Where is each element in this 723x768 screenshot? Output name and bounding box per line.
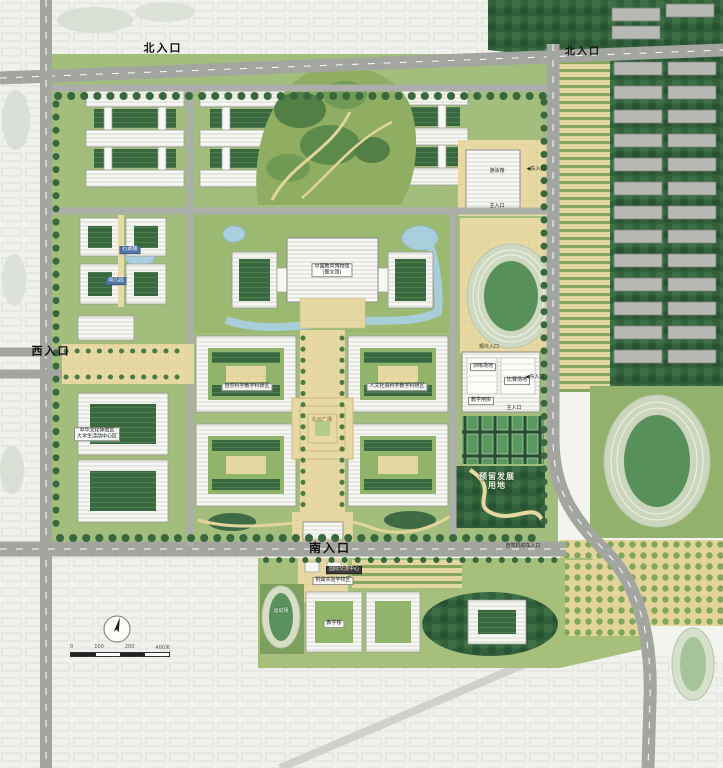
- school-building-label: 教学楼: [323, 620, 344, 628]
- gym-classrooms-label: 教学用房: [468, 397, 494, 405]
- school-sports-field-label: 运动场: [273, 609, 288, 615]
- vehicle-entrance-label: 自驾机动车入口: [505, 544, 540, 550]
- central-axis: [292, 330, 353, 548]
- culture-zone-label: 中华文化体验区大学生活动中心区: [74, 427, 120, 441]
- intl-center-label: 国际交流中心: [326, 566, 362, 574]
- scale-tick: 0: [70, 644, 73, 651]
- scale-tick: 400米: [155, 644, 170, 651]
- gym-east-entrance-label: ◀东入口: [526, 375, 545, 381]
- east-stadium: [590, 386, 723, 538]
- north-entrance-east-label: 北入口: [565, 46, 601, 58]
- library-label: 中国教育博物馆(图文馆): [311, 263, 352, 277]
- west-entrance-label: 西入口: [32, 346, 71, 359]
- industrial-zone-east: [556, 46, 723, 392]
- gym-main-entrance-label: 主入口: [506, 406, 521, 412]
- pool-east-entrance-label: ◀东入口: [527, 167, 546, 173]
- reserved-land-label: 预留发展用地: [479, 472, 515, 490]
- kindergarten-label: 幼儿园: [105, 277, 126, 285]
- south-campus: [258, 558, 648, 668]
- ceremony-plaza-label: 礼仪广场: [312, 418, 332, 424]
- sciences-zone-label: 自然科学教学科研区: [221, 383, 272, 391]
- admin-building-label: 行政楼: [119, 246, 140, 254]
- attached-school-label: 附属实验学校区: [312, 577, 353, 585]
- stadium-main-entrance-label: 主入口: [489, 204, 504, 210]
- swim-hall-label: 游泳馆: [489, 169, 504, 175]
- campus-master-plan: 北入口 北入口 西入口 南入口 游泳馆 ◀东入口 主入口 观众入口 训练场地 比…: [0, 0, 723, 768]
- south-entrance-label: 南入口: [309, 542, 351, 556]
- humanities-zone-label: 人文社会科学教学科研区: [366, 383, 427, 391]
- gym-spectator-entrance-label: 观众入口: [479, 345, 499, 351]
- north-entrance-west-label: 北入口: [144, 43, 183, 56]
- gym-training-label: 训练场地: [470, 363, 496, 371]
